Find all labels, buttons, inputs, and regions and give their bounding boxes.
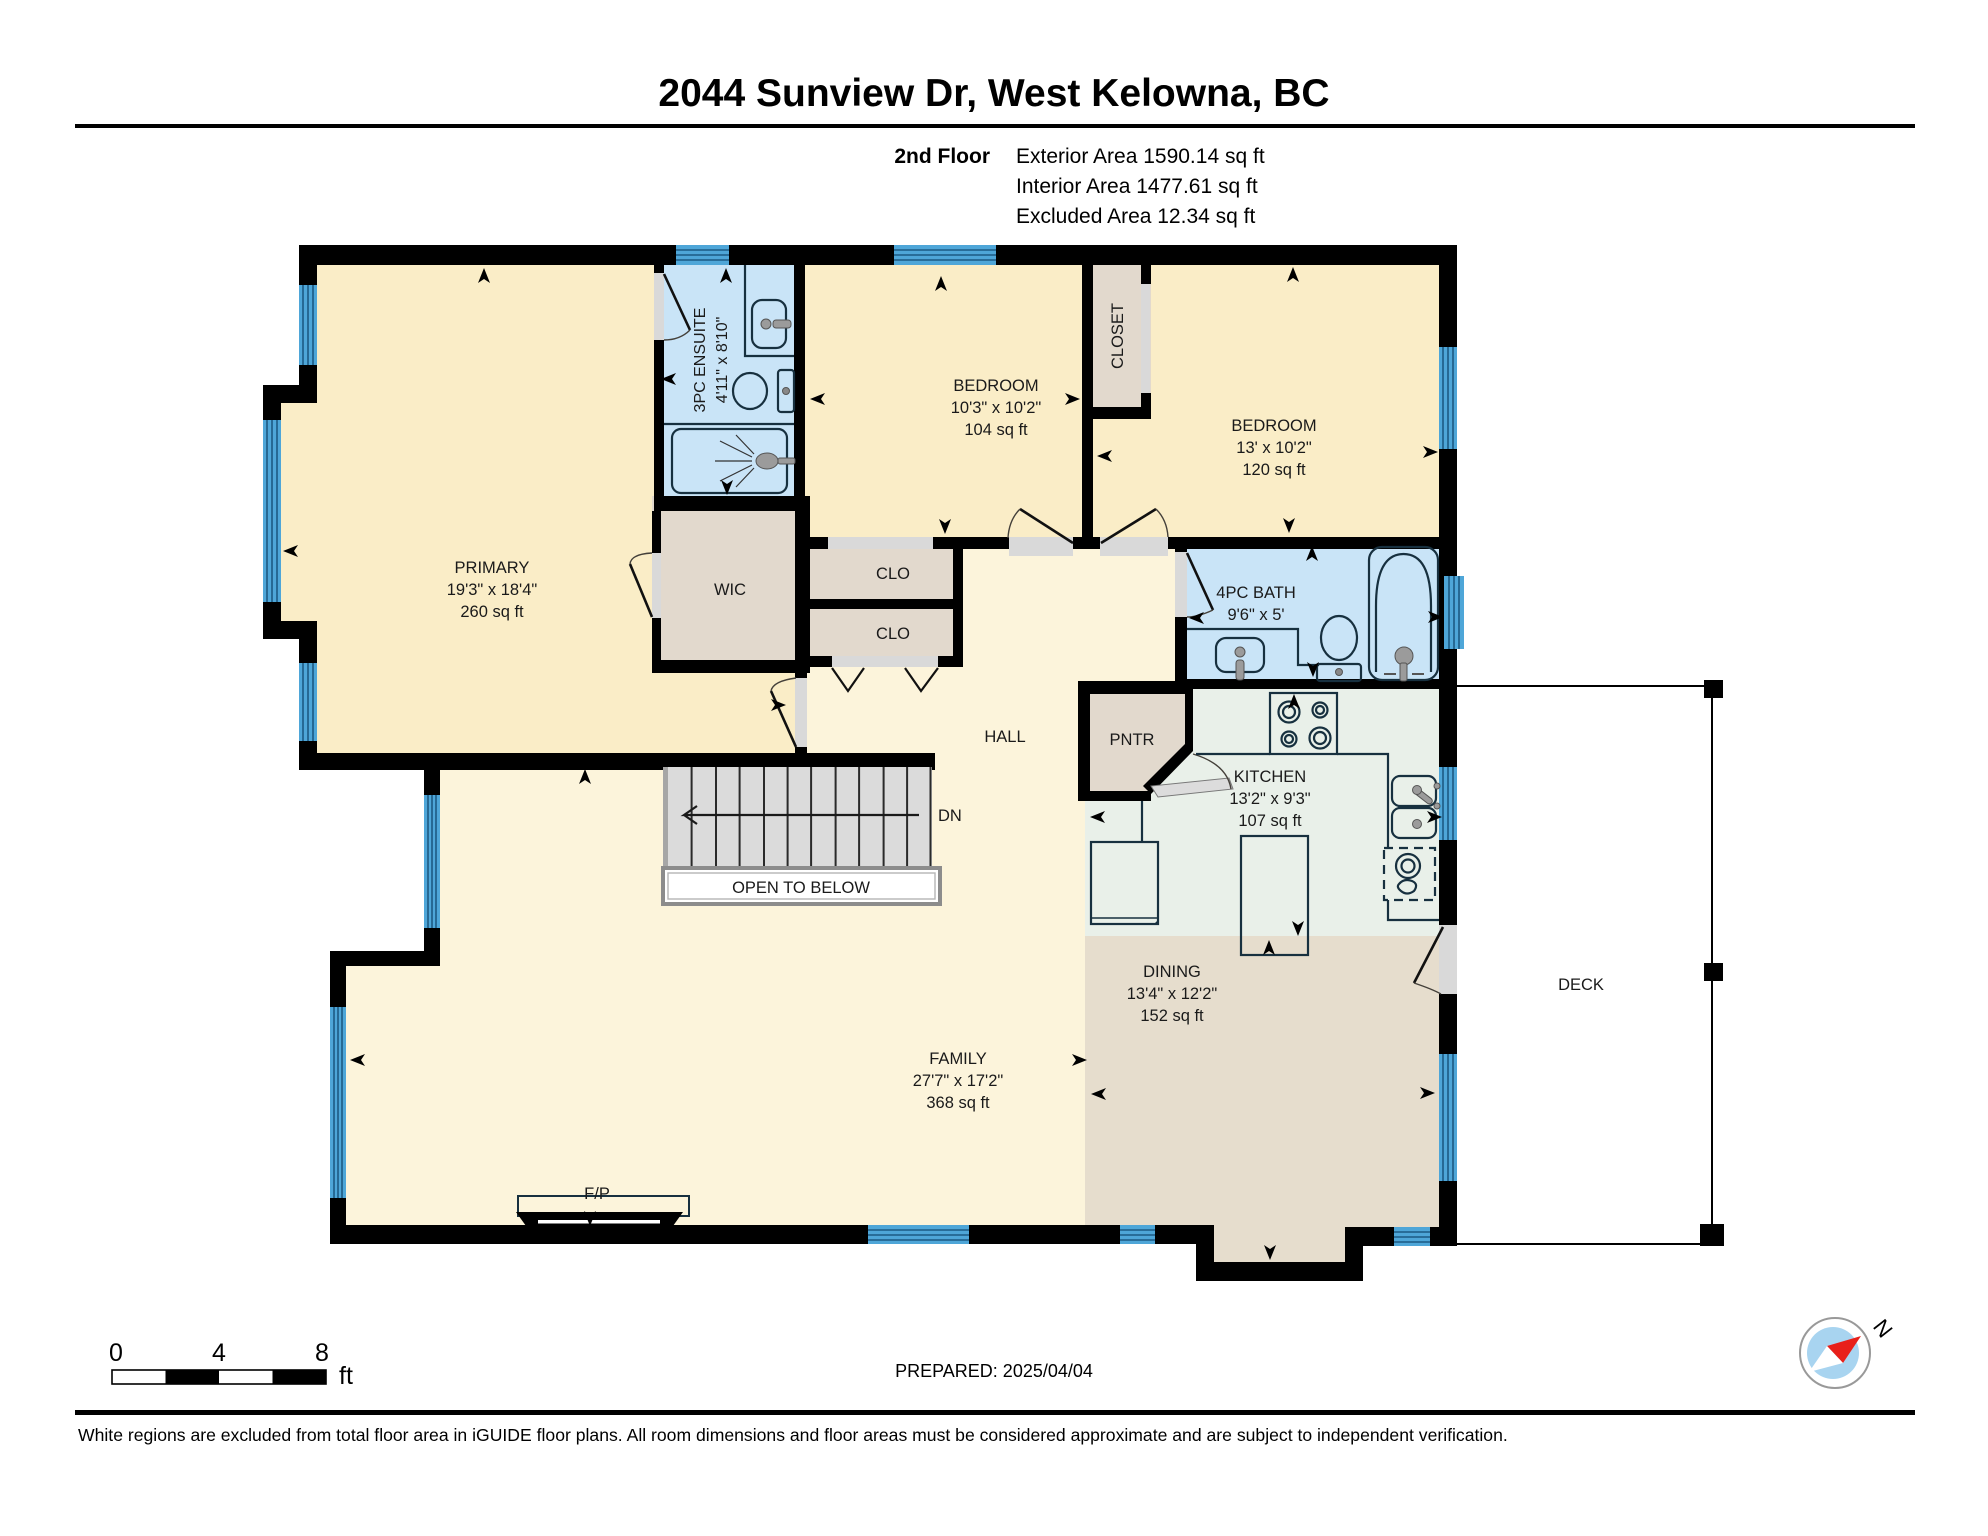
svg-text:BEDROOM: BEDROOM xyxy=(953,377,1038,395)
svg-text:9'6" x 5': 9'6" x 5' xyxy=(1227,606,1284,624)
svg-text:104 sq ft: 104 sq ft xyxy=(964,421,1028,439)
svg-text:PNTR: PNTR xyxy=(1110,731,1155,749)
svg-text:0: 0 xyxy=(109,1339,123,1367)
svg-text:DINING: DINING xyxy=(1143,963,1201,981)
svg-text:OPEN TO BELOW: OPEN TO BELOW xyxy=(732,879,870,897)
svg-text:2044 Sunview Dr, West Kelowna,: 2044 Sunview Dr, West Kelowna, BC xyxy=(658,72,1329,115)
svg-text:CLOSET: CLOSET xyxy=(1109,303,1127,369)
svg-text:CLO: CLO xyxy=(876,565,910,583)
svg-text:120 sq ft: 120 sq ft xyxy=(1242,461,1306,479)
svg-text:152 sq ft: 152 sq ft xyxy=(1140,1007,1204,1025)
svg-text:PREPARED: 2025/04/04: PREPARED: 2025/04/04 xyxy=(895,1361,1093,1381)
svg-text:27'7" x 17'2": 27'7" x 17'2" xyxy=(913,1072,1004,1090)
svg-text:368 sq ft: 368 sq ft xyxy=(926,1094,990,1112)
svg-text:FAMILY: FAMILY xyxy=(929,1050,986,1068)
svg-text:8: 8 xyxy=(315,1339,329,1367)
svg-text:DN: DN xyxy=(938,807,962,825)
svg-text:PRIMARY: PRIMARY xyxy=(455,559,530,577)
svg-text:KITCHEN: KITCHEN xyxy=(1234,768,1306,786)
svg-text:13'2" x 9'3": 13'2" x 9'3" xyxy=(1229,790,1310,808)
svg-text:4'11" x 8'10": 4'11" x 8'10" xyxy=(714,317,731,404)
svg-text:3PC ENSUITE: 3PC ENSUITE xyxy=(692,308,709,413)
svg-text:CLO: CLO xyxy=(876,625,910,643)
svg-text:WIC: WIC xyxy=(714,581,746,599)
svg-text:4PC BATH: 4PC BATH xyxy=(1216,584,1295,602)
svg-text:4: 4 xyxy=(212,1339,226,1367)
svg-text:13'4" x 12'2": 13'4" x 12'2" xyxy=(1127,985,1218,1003)
svg-text:White regions are excluded fro: White regions are excluded from total fl… xyxy=(78,1425,1508,1445)
svg-text:HALL: HALL xyxy=(984,728,1025,746)
svg-text:2nd Floor: 2nd Floor xyxy=(894,145,990,168)
svg-text:BEDROOM: BEDROOM xyxy=(1231,417,1316,435)
svg-text:ft: ft xyxy=(339,1362,353,1390)
svg-text:Excluded Area 12.34 sq ft: Excluded Area 12.34 sq ft xyxy=(1016,205,1255,228)
svg-text:10'3" x 10'2": 10'3" x 10'2" xyxy=(951,399,1042,417)
svg-text:260 sq ft: 260 sq ft xyxy=(460,603,524,621)
svg-text:Interior Area 1477.61 sq ft: Interior Area 1477.61 sq ft xyxy=(1016,175,1258,198)
svg-text:F/P: F/P xyxy=(584,1185,610,1203)
svg-text:Exterior Area 1590.14 sq ft: Exterior Area 1590.14 sq ft xyxy=(1016,145,1265,168)
svg-text:107 sq ft: 107 sq ft xyxy=(1238,812,1302,830)
svg-text:DECK: DECK xyxy=(1558,976,1604,994)
svg-text:13' x 10'2": 13' x 10'2" xyxy=(1236,439,1312,457)
svg-text:19'3" x 18'4": 19'3" x 18'4" xyxy=(447,581,538,599)
